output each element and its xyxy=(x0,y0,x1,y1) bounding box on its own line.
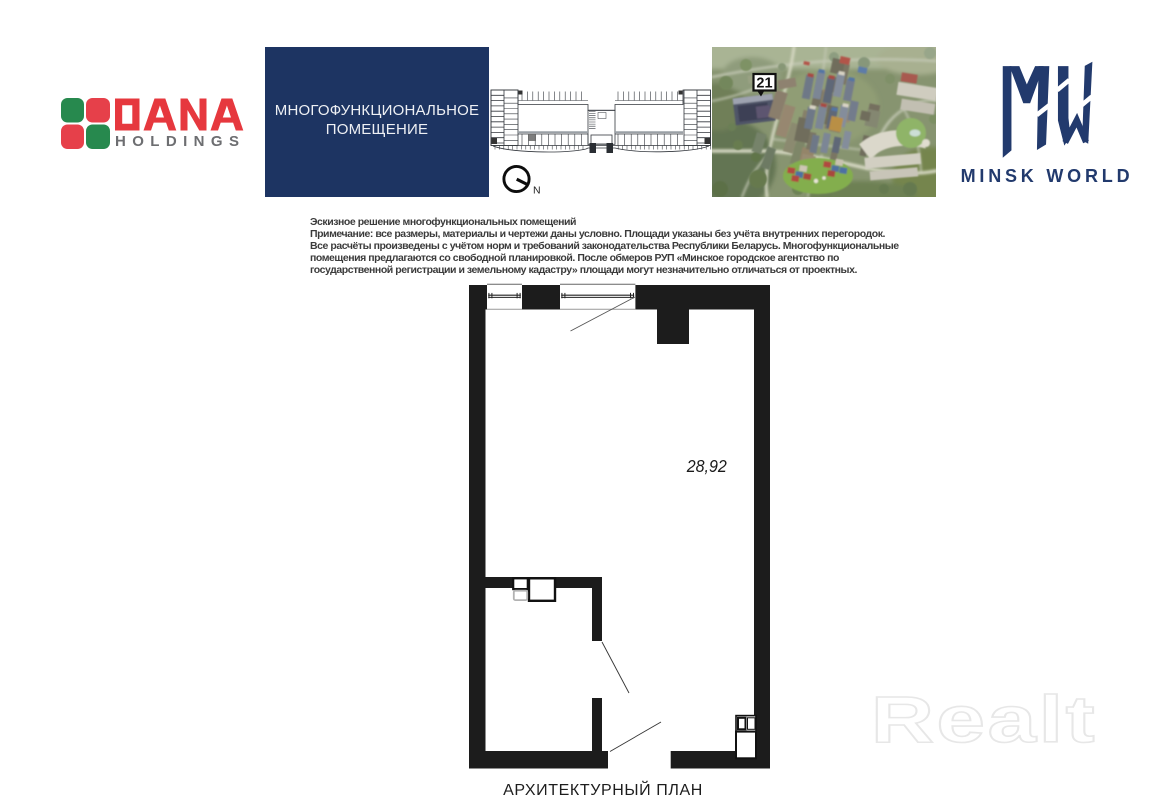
svg-text:21: 21 xyxy=(756,76,772,92)
svg-text:N: N xyxy=(533,185,541,197)
svg-text:28,92: 28,92 xyxy=(686,456,727,476)
